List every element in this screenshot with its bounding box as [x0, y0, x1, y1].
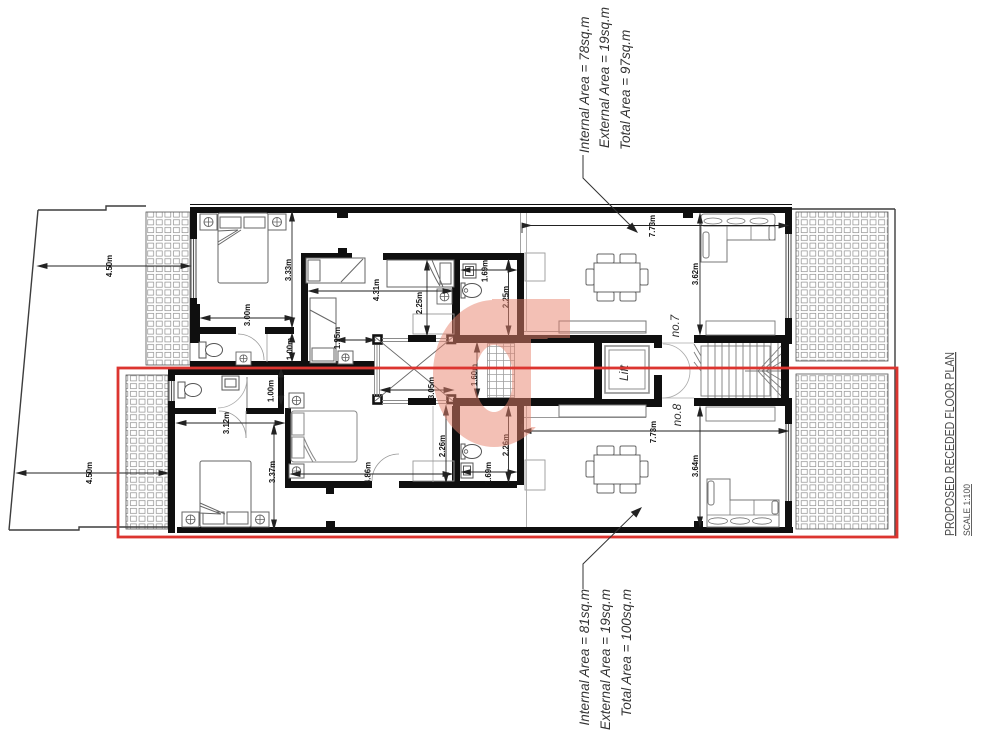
svg-text:4.50m: 4.50m — [105, 255, 114, 277]
svg-text:no.8: no.8 — [672, 403, 684, 426]
svg-text:3.62m: 3.62m — [691, 263, 700, 285]
svg-text:2.26m: 2.26m — [438, 435, 447, 457]
svg-text:3.37m: 3.37m — [268, 461, 277, 483]
svg-text:1.69m: 1.69m — [484, 462, 493, 484]
svg-text:Total Area = 100sq.m: Total Area = 100sq.m — [619, 589, 634, 717]
svg-text:3.12m: 3.12m — [222, 412, 231, 434]
svg-text:no.7: no.7 — [670, 314, 682, 337]
svg-text:7.73m: 7.73m — [648, 215, 657, 237]
svg-text:3.00m: 3.00m — [243, 304, 252, 326]
svg-text:SCALE 1:100: SCALE 1:100 — [962, 484, 972, 536]
svg-text:2.25m: 2.25m — [415, 292, 424, 314]
svg-text:1.95m: 1.95m — [333, 327, 342, 349]
svg-text:4.86m: 4.86m — [364, 462, 373, 484]
svg-text:3.33m: 3.33m — [284, 259, 293, 281]
svg-text:1.69m: 1.69m — [481, 260, 490, 282]
svg-text:Internal Area = 81sq.m: Internal Area = 81sq.m — [577, 589, 592, 725]
svg-text:Total Area = 97sq.m: Total Area = 97sq.m — [618, 30, 633, 150]
svg-text:1.00m: 1.00m — [267, 380, 276, 402]
svg-text:External Area = 19sq.m: External Area = 19sq.m — [597, 7, 612, 148]
svg-text:4.50m: 4.50m — [85, 462, 94, 484]
svg-text:External Area = 19sq.m: External Area = 19sq.m — [598, 589, 613, 730]
svg-text:Internal Area = 78sq.m: Internal Area = 78sq.m — [577, 17, 592, 153]
svg-text:PROPOSED RECEDED FLOOR PLAN: PROPOSED RECEDED FLOOR PLAN — [943, 352, 957, 536]
svg-text:3.64m: 3.64m — [691, 455, 700, 477]
svg-text:4.31m: 4.31m — [372, 279, 381, 301]
svg-text:7.73m: 7.73m — [649, 421, 658, 443]
svg-text:1.00m: 1.00m — [286, 338, 295, 360]
